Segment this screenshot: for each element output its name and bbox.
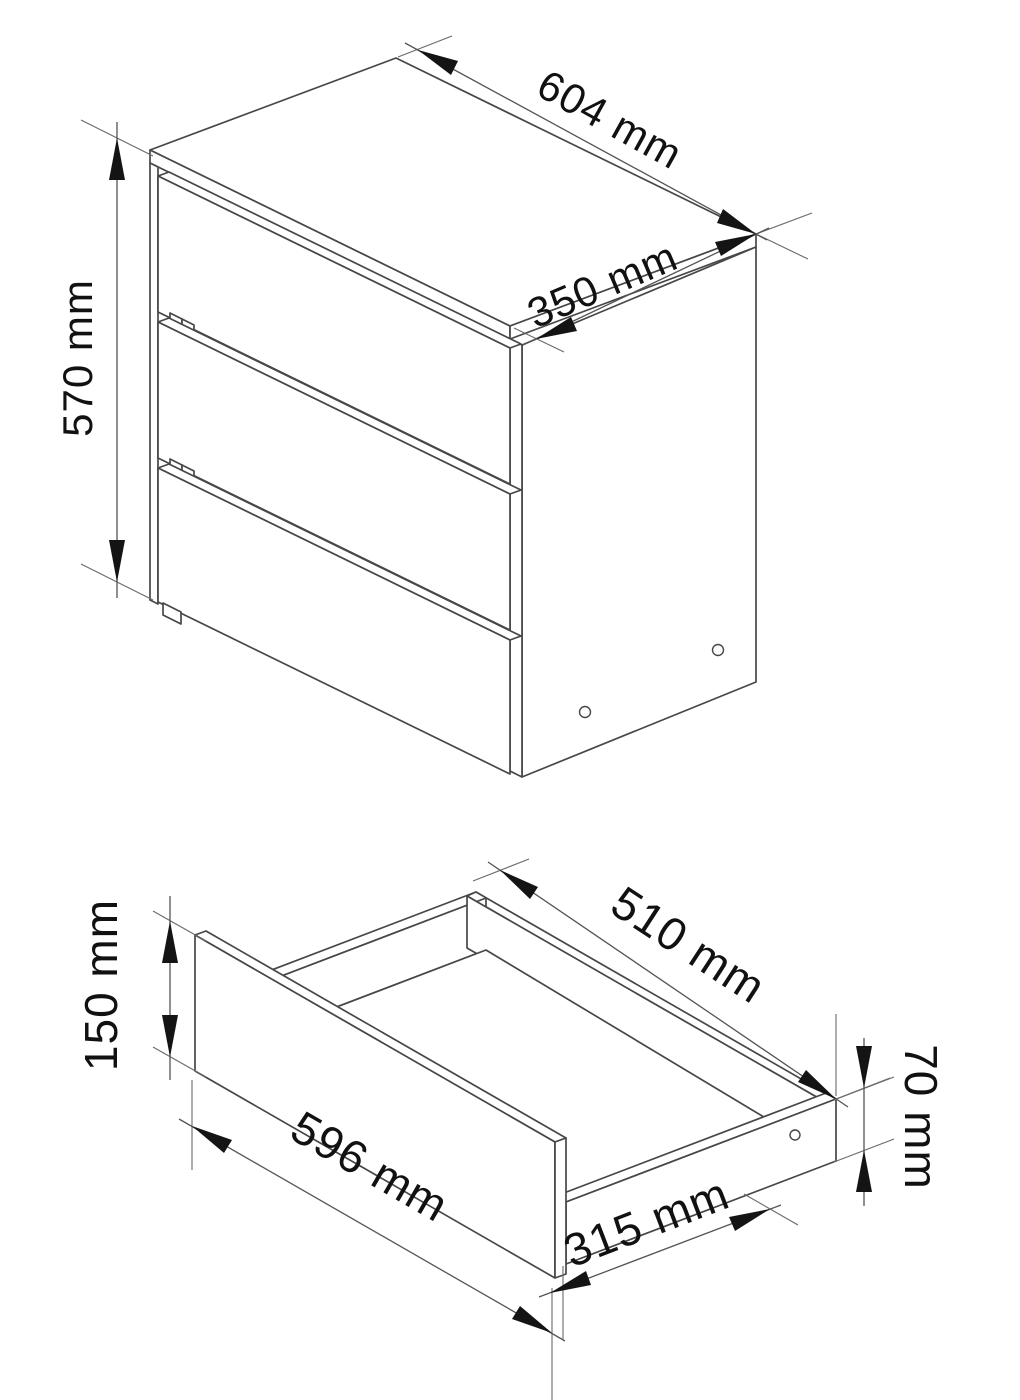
arrowhead [856,1150,872,1192]
dim-label-height: 570 mm [54,279,101,437]
dimension-front-height-150: 150 mm [75,896,206,1080]
arrowhead [109,138,125,180]
arrowhead [162,1015,178,1057]
arrowhead [729,1209,770,1231]
cabinet-left-edge-strip [150,163,158,604]
technical-drawing-page: 604 mm 350 mm 570 mm [0,0,1020,1400]
screw-hole-icon [790,1130,800,1140]
arrowhead [512,1306,552,1333]
arrowhead [192,1126,232,1153]
cabinet-view: 604 mm 350 mm 570 mm [54,36,812,777]
dimension-side-height-70: 70 mm [834,1038,947,1206]
drawer-front-panel-end-edge [555,1138,566,1278]
dim-label-front-height: 150 mm [75,899,127,1071]
furniture-dimension-diagram: 604 mm 350 mm 570 mm [0,0,1020,1400]
arrowhead [109,540,125,582]
cabinet-side-front-edge [510,339,522,777]
screw-hole-icon [713,645,724,656]
drawer-view: 150 mm 510 mm 70 mm 59 [75,859,947,1400]
dim-label-side-height: 70 mm [895,1044,947,1190]
arrowhead [856,1046,872,1088]
dimension-height-570: 570 mm [54,120,153,600]
arrowhead [162,921,178,963]
screw-hole-icon [580,707,591,718]
arrowhead [500,870,538,899]
